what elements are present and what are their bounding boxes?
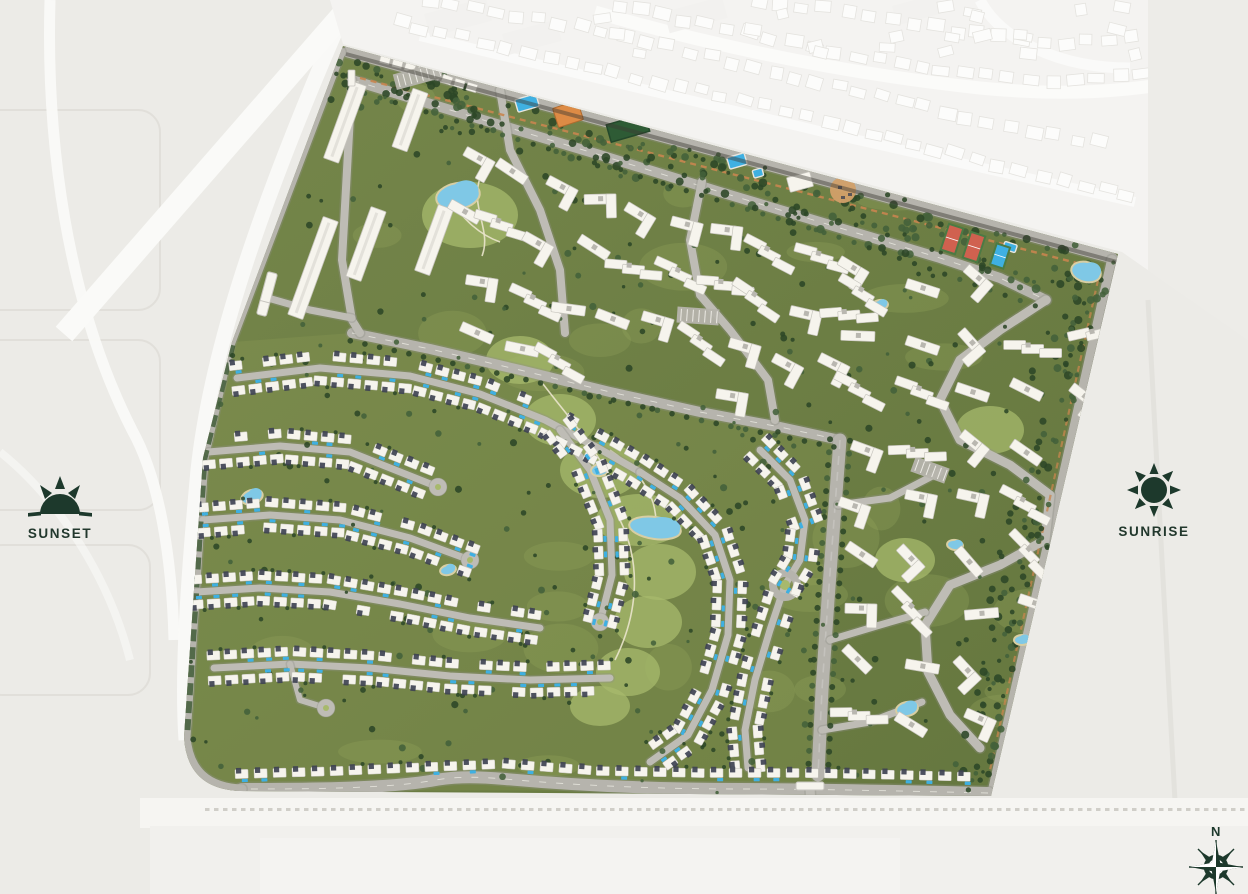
compass-north-label: N [1186, 824, 1246, 839]
sunrise-label: SUNRISE [1116, 524, 1192, 539]
compass-rose-icon [1188, 840, 1244, 894]
master-plan-map [0, 0, 1248, 894]
sunrise-icon [1126, 462, 1182, 518]
sunset-label: SUNSET [12, 526, 108, 541]
sunset-icon [28, 474, 92, 520]
master-plan-page: SUNSET SUNRISE N [0, 0, 1248, 894]
sunset-legend: SUNSET [12, 474, 108, 541]
compass: N [1186, 824, 1246, 894]
sunrise-legend: SUNRISE [1116, 462, 1192, 539]
